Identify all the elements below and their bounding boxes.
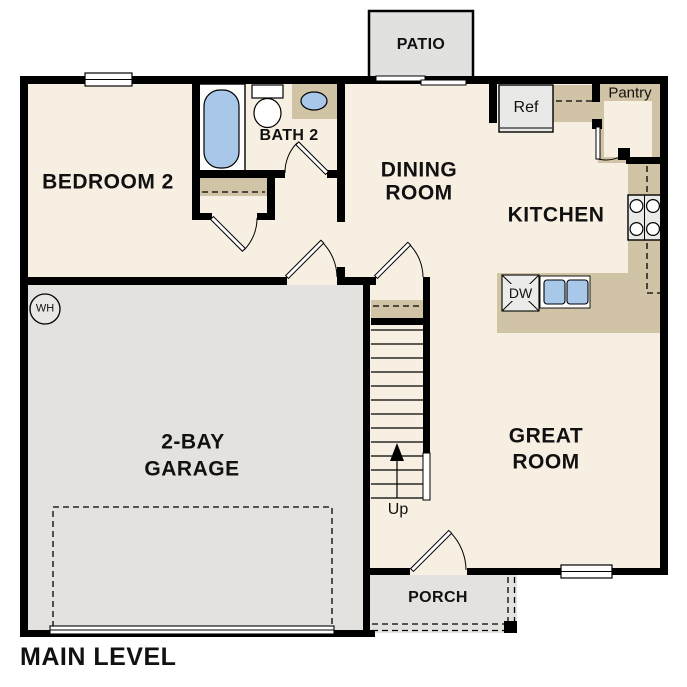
bath-sink [301, 92, 327, 110]
stairs-up-label: Up [388, 502, 408, 518]
floor-plan: PATIO BEDROOM 2 BATH 2 DINING ROOM KITCH… [0, 0, 687, 687]
wall-bottom [467, 568, 563, 575]
bedroom-closet-shelf [200, 177, 267, 196]
garage-label-line1: 2-BAY [161, 432, 225, 453]
garage-label-line2: GARAGE [144, 459, 239, 480]
patio-slider-panel [376, 76, 425, 81]
stair-railing [423, 453, 430, 500]
patio-label: PATIO [397, 37, 446, 53]
burner-icon [630, 200, 643, 213]
bedroom2-label: BEDROOM 2 [42, 172, 174, 193]
kitchen-label: KITCHEN [508, 205, 605, 226]
wall-closet [192, 213, 212, 220]
porch-label: PORCH [408, 590, 468, 606]
pantry-label: Pantry [608, 86, 651, 101]
wall-hall [423, 277, 430, 285]
burner-icon [630, 223, 643, 236]
dishwasher-label: DW [509, 286, 532, 300]
bathtub [204, 90, 239, 168]
toilet-bowl [254, 99, 281, 128]
pantry-door-jamb [618, 148, 630, 160]
wall-bottom [363, 568, 410, 575]
bath2-label: BATH 2 [260, 128, 319, 144]
kitchen-counter-by-ref [553, 85, 598, 122]
wall-stair-closet [371, 318, 423, 325]
stair-closet-shelf [371, 300, 423, 318]
wall-garage-top [28, 277, 287, 285]
refrigerator-label: Ref [514, 100, 539, 116]
dining-label-line1: DINING [381, 160, 458, 181]
great-room-label-line2: ROOM [512, 452, 579, 473]
kitchen-sink-basin [544, 280, 565, 304]
wall-bottom [612, 568, 668, 575]
wall-bedroom-bath [192, 84, 200, 178]
wall-bath-bottom [192, 170, 285, 178]
kitchen-sink-basin [567, 280, 588, 304]
floor-plan-drawing [0, 0, 687, 687]
patio-slider-panel [421, 80, 466, 85]
great-room-label-line1: GREAT [509, 426, 583, 447]
dining-label-line2: ROOM [385, 183, 452, 204]
plan-title: MAIN LEVEL [20, 645, 176, 670]
wall-bath-dining [337, 267, 345, 285]
toilet-tank [252, 85, 283, 98]
wall-bath-dining [337, 84, 345, 222]
wall-stairs-right [423, 285, 430, 455]
wall-closet [257, 213, 275, 220]
wall-garage-stairs [363, 277, 370, 637]
wall-pantry-bottom [626, 157, 661, 164]
burner-icon [647, 223, 660, 236]
wall-pantry-stub [592, 84, 600, 102]
kitchen-counter-right-wall [628, 163, 661, 333]
pantry-door-leaf [596, 127, 600, 159]
burner-icon [647, 200, 660, 213]
wall-left [20, 76, 28, 637]
water-heater-label: WH [36, 304, 54, 315]
porch-post [504, 621, 517, 633]
wall-right [660, 84, 668, 575]
wall-kitchen-stub [489, 84, 497, 123]
